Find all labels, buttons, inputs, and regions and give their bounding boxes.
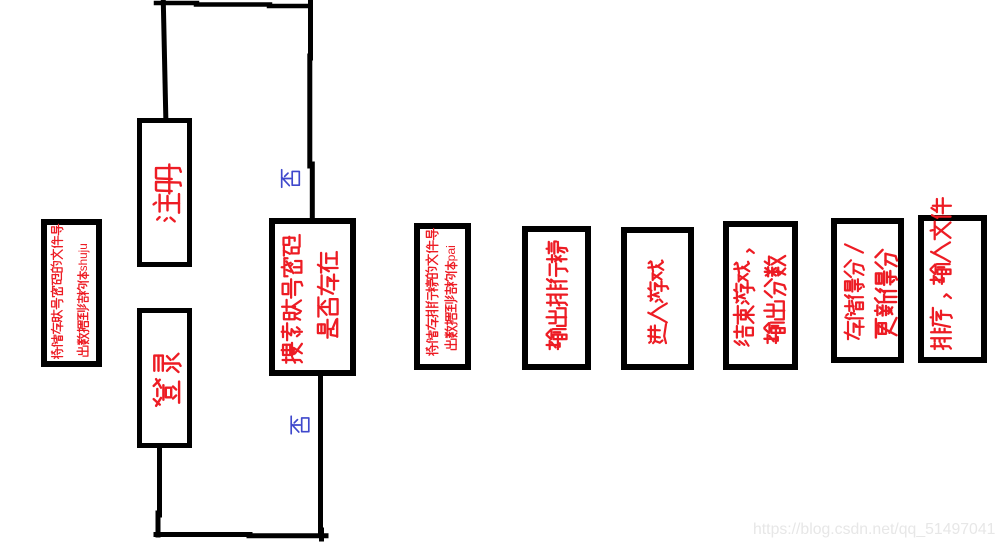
svg-text:https://blog.csdn.net/qq_51497: https://blog.csdn.net/qq_51497041 (753, 521, 996, 538)
svg-text:pai: pai (444, 245, 458, 261)
svg-text:shuju: shuju (77, 243, 90, 271)
